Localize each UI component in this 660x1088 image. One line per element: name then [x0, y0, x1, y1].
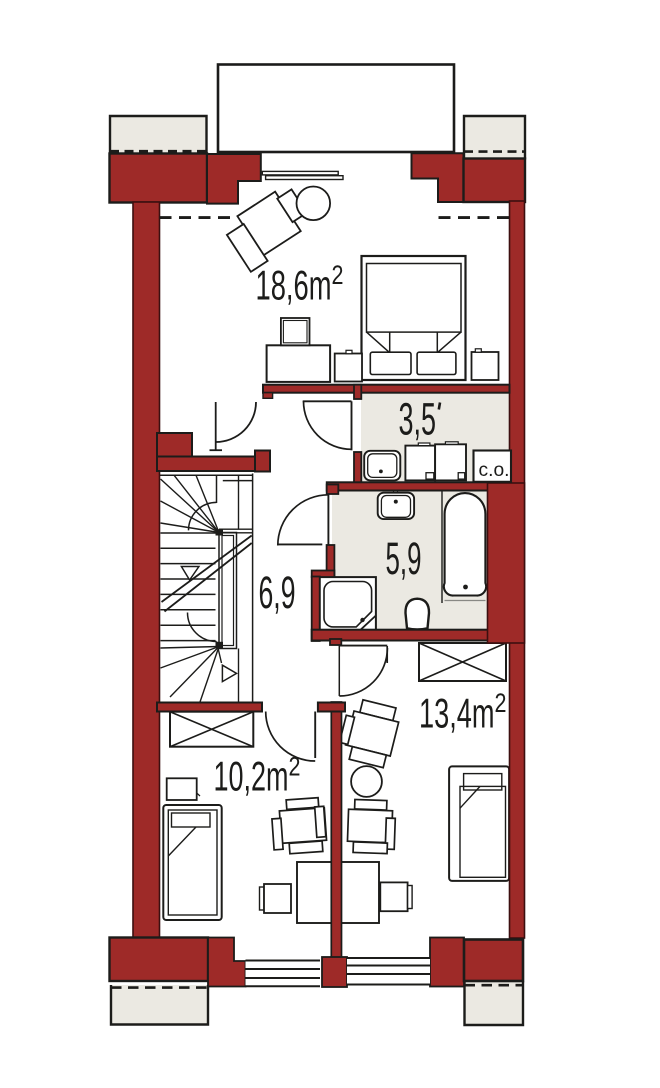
svg-text:18,6m: 18,6m: [256, 262, 332, 309]
svg-text:2: 2: [289, 752, 301, 782]
svg-text:6,9: 6,9: [259, 567, 296, 618]
svg-text:c.o.: c.o.: [479, 460, 510, 481]
svg-text:5,9: 5,9: [386, 533, 422, 584]
svg-text:10,2m: 10,2m: [214, 753, 289, 800]
svg-text:13,4m: 13,4m: [419, 690, 495, 737]
svg-text:2: 2: [332, 260, 344, 290]
svg-text:2: 2: [495, 688, 507, 718]
svg-text:3,5: 3,5: [399, 394, 437, 445]
